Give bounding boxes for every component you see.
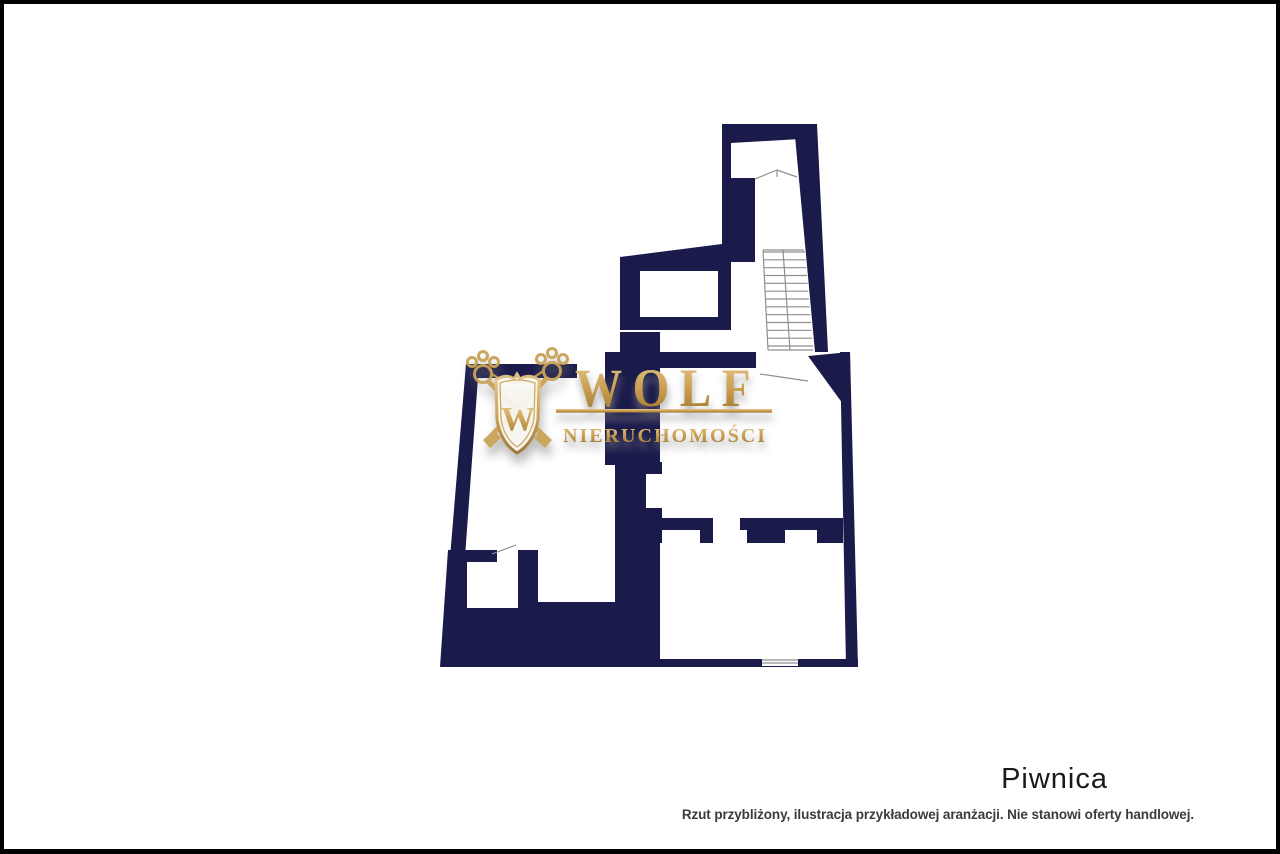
wall-tower-inner-block [730,178,755,262]
wall-tower-left-wall [722,124,731,246]
crest-letter: W [501,401,535,438]
room-small-room-door-gap [497,547,518,563]
logo-underline [556,409,772,413]
room-arm-room [640,271,718,317]
room-column-notch [646,474,662,508]
room-small-room [467,562,518,608]
wall-mid-wall-left [658,518,713,543]
room-bottom-center-room [660,543,690,659]
floor-title: Piwnica [1001,763,1108,796]
floor-plan-canvas: W WOLF NIERUCHOMOŚCI [0,0,1280,854]
tower-break-line-r [777,170,797,177]
logo-subtitle: NIERUCHOMOŚCI [563,423,767,447]
key-bit-left [483,430,501,448]
tower-break-line-l [755,170,777,179]
stairs-door-line [760,374,808,381]
wall-tower-right-wall [795,124,828,352]
wall-right-outer-wall [840,352,858,667]
stairs-left-edge [763,250,768,350]
disclaimer-text: Rzut przybliżony, ilustracja przykładowe… [682,807,1194,822]
room-center-strip-room [538,549,615,602]
key-bit-right [534,430,552,448]
stairs-divider [783,250,790,350]
wall-mid-wall-right [740,518,843,543]
